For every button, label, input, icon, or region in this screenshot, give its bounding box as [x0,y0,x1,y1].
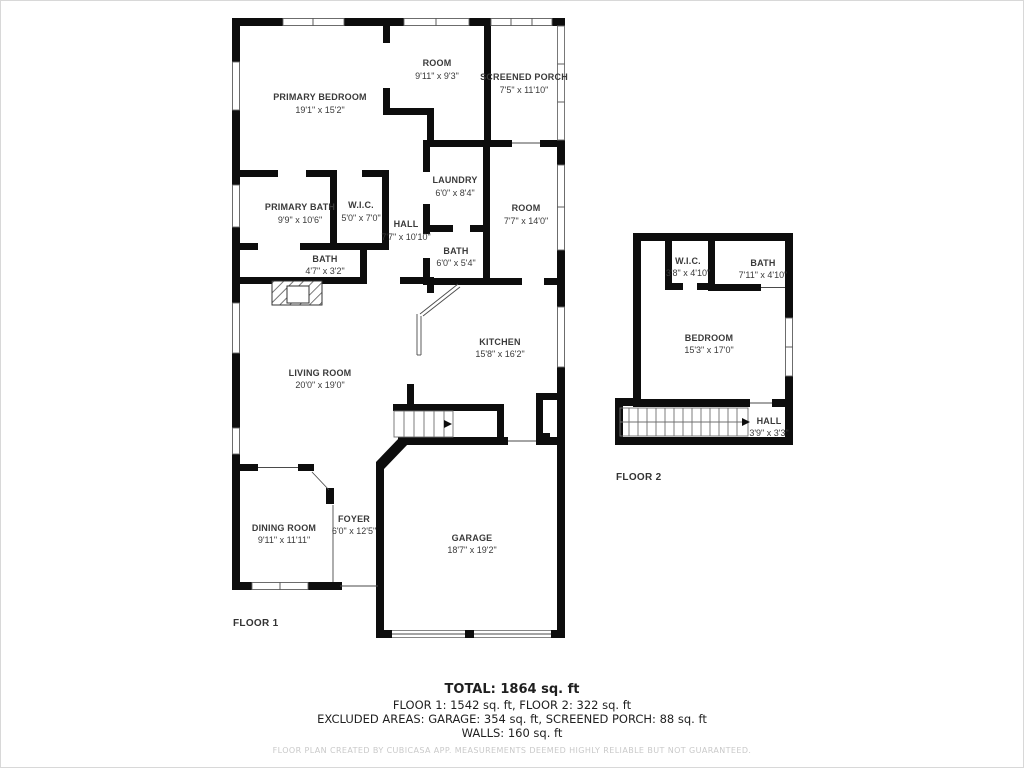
room-dims-bath-3: 7'11" x 4'10" [739,270,788,280]
room-dims-wic-2: 3'8" x 4'10" [666,268,710,278]
room-label-bath-2: BATH [312,254,337,264]
room-dims-laundry: 6'0" x 8'4" [435,188,474,198]
room-label-bath-3: BATH [750,258,775,268]
room-label-screened-porch: SCREENED PORCH [480,72,568,82]
room-label-foyer: FOYER [338,514,370,524]
walls-area-text: WALLS: 160 sq. ft [0,726,1024,740]
floor1-stairs [394,411,453,437]
room-label-garage: GARAGE [452,533,493,543]
room-dims-primary-bedroom: 19'1" x 15'2" [295,105,344,115]
room-dims-wic-1: 5'0" x 7'0" [341,213,380,223]
room-label-room-2: ROOM [512,203,541,213]
room-label-wic-2: W.I.C. [675,256,701,266]
room-dims-bedroom-2: 15'3" x 17'0" [684,345,733,355]
floor-plan-drawing: PRIMARY BEDROOM 19'1" x 15'2" ROOM 9'11"… [0,0,1024,768]
image-border [1,1,1024,768]
room-dims-bath-2: 4'7" x 3'2" [305,266,344,276]
floor-areas-text: FLOOR 1: 1542 sq. ft, FLOOR 2: 322 sq. f… [0,698,1024,712]
floor2-label: FLOOR 2 [616,472,662,483]
room-label-kitchen: KITCHEN [479,337,520,347]
room-dims-hall-2: 3'9" x 3'3" [749,428,788,438]
room-dims-foyer: 6'0" x 12'5" [332,526,376,536]
room-dims-primary-bath: 9'9" x 10'6" [278,215,322,225]
room-dims-room-1: 9'11" x 9'3" [415,71,459,81]
room-dims-bath-1: 6'0" x 5'4" [436,258,475,268]
room-label-hall-2: HALL [757,416,782,426]
room-dims-garage: 18'7" x 19'2" [447,545,496,555]
room-label-laundry: LAUNDRY [432,175,477,185]
floor-plan-page: PRIMARY BEDROOM 19'1" x 15'2" ROOM 9'11"… [0,0,1024,768]
room-dims-hall-1: 7'7" x 10'10" [381,232,430,242]
room-label-wic-1: W.I.C. [348,200,374,210]
floor1-labels: PRIMARY BEDROOM 19'1" x 15'2" ROOM 9'11"… [233,58,568,629]
room-label-primary-bedroom: PRIMARY BEDROOM [273,92,367,102]
room-dims-dining-room: 9'11" x 11'11" [258,535,310,545]
room-label-room-1: ROOM [423,58,452,68]
room-dims-kitchen: 15'8" x 16'2" [475,349,524,359]
room-dims-living-room: 20'0" x 19'0" [295,380,344,390]
room-label-bath-1: BATH [443,246,468,256]
room-label-primary-bath: PRIMARY BATH [265,202,335,212]
total-area-text: TOTAL: 1864 sq. ft [0,682,1024,698]
summary-block: TOTAL: 1864 sq. ft FLOOR 1: 1542 sq. ft,… [0,682,1024,755]
floor2-stairs [620,408,750,436]
floor2-labels: W.I.C. 3'8" x 4'10" BATH 7'11" x 4'10" B… [616,256,789,483]
floor1-walls [232,18,565,638]
fireplace [272,281,322,305]
room-label-hall-1: HALL [394,219,419,229]
disclaimer-text: FLOOR PLAN CREATED BY CUBICASA APP. MEAS… [0,746,1024,755]
excluded-areas-text: EXCLUDED AREAS: GARAGE: 354 sq. ft, SCRE… [0,712,1024,726]
room-dims-room-2: 7'7" x 14'0" [504,216,548,226]
room-label-bedroom-2: BEDROOM [685,333,733,343]
floor1-label: FLOOR 1 [233,618,279,629]
room-dims-screened-porch: 7'5" x 11'10" [500,85,549,95]
room-label-living-room: LIVING ROOM [289,368,352,378]
room-label-dining-room: DINING ROOM [252,523,316,533]
